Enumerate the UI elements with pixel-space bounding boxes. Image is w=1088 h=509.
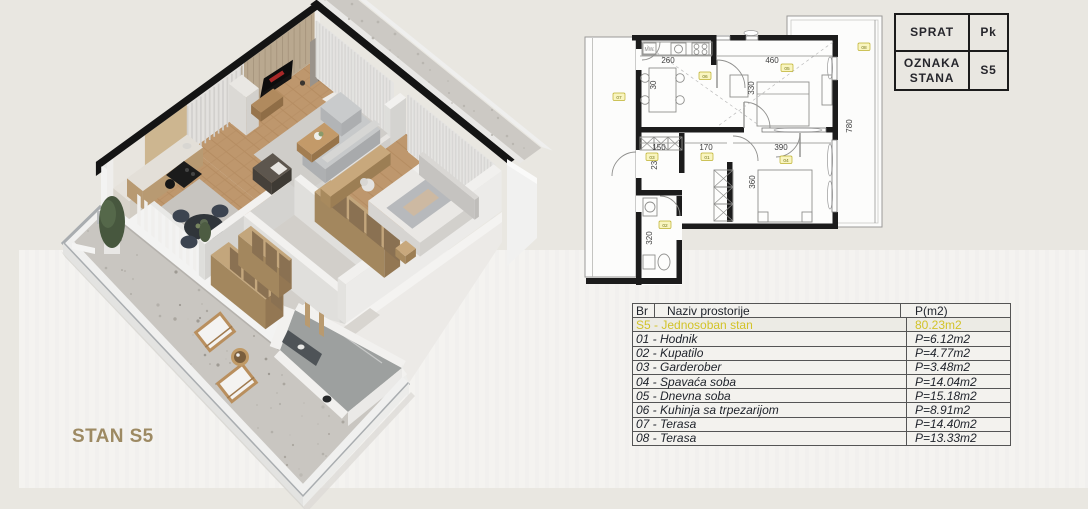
svg-text:260: 260 <box>661 56 675 65</box>
svg-text:30: 30 <box>649 80 658 89</box>
svg-text:150: 150 <box>652 143 666 152</box>
svg-text:03: 03 <box>649 155 655 161</box>
svg-text:05: 05 <box>784 66 790 72</box>
svg-text:320: 320 <box>645 231 654 245</box>
svg-text:02: 02 <box>662 223 668 229</box>
svg-text:170: 170 <box>699 143 713 152</box>
svg-text:MW: MW <box>645 47 654 53</box>
svg-text:01: 01 <box>704 155 710 161</box>
svg-text:06: 06 <box>702 74 708 80</box>
svg-text:07: 07 <box>616 95 622 101</box>
svg-text:780: 780 <box>845 119 854 133</box>
svg-text:460: 460 <box>765 56 779 65</box>
svg-text:360: 360 <box>748 175 757 189</box>
svg-text:08: 08 <box>861 45 867 51</box>
svg-text:390: 390 <box>774 143 788 152</box>
svg-text:04: 04 <box>783 158 789 164</box>
svg-text:330: 330 <box>747 81 756 95</box>
